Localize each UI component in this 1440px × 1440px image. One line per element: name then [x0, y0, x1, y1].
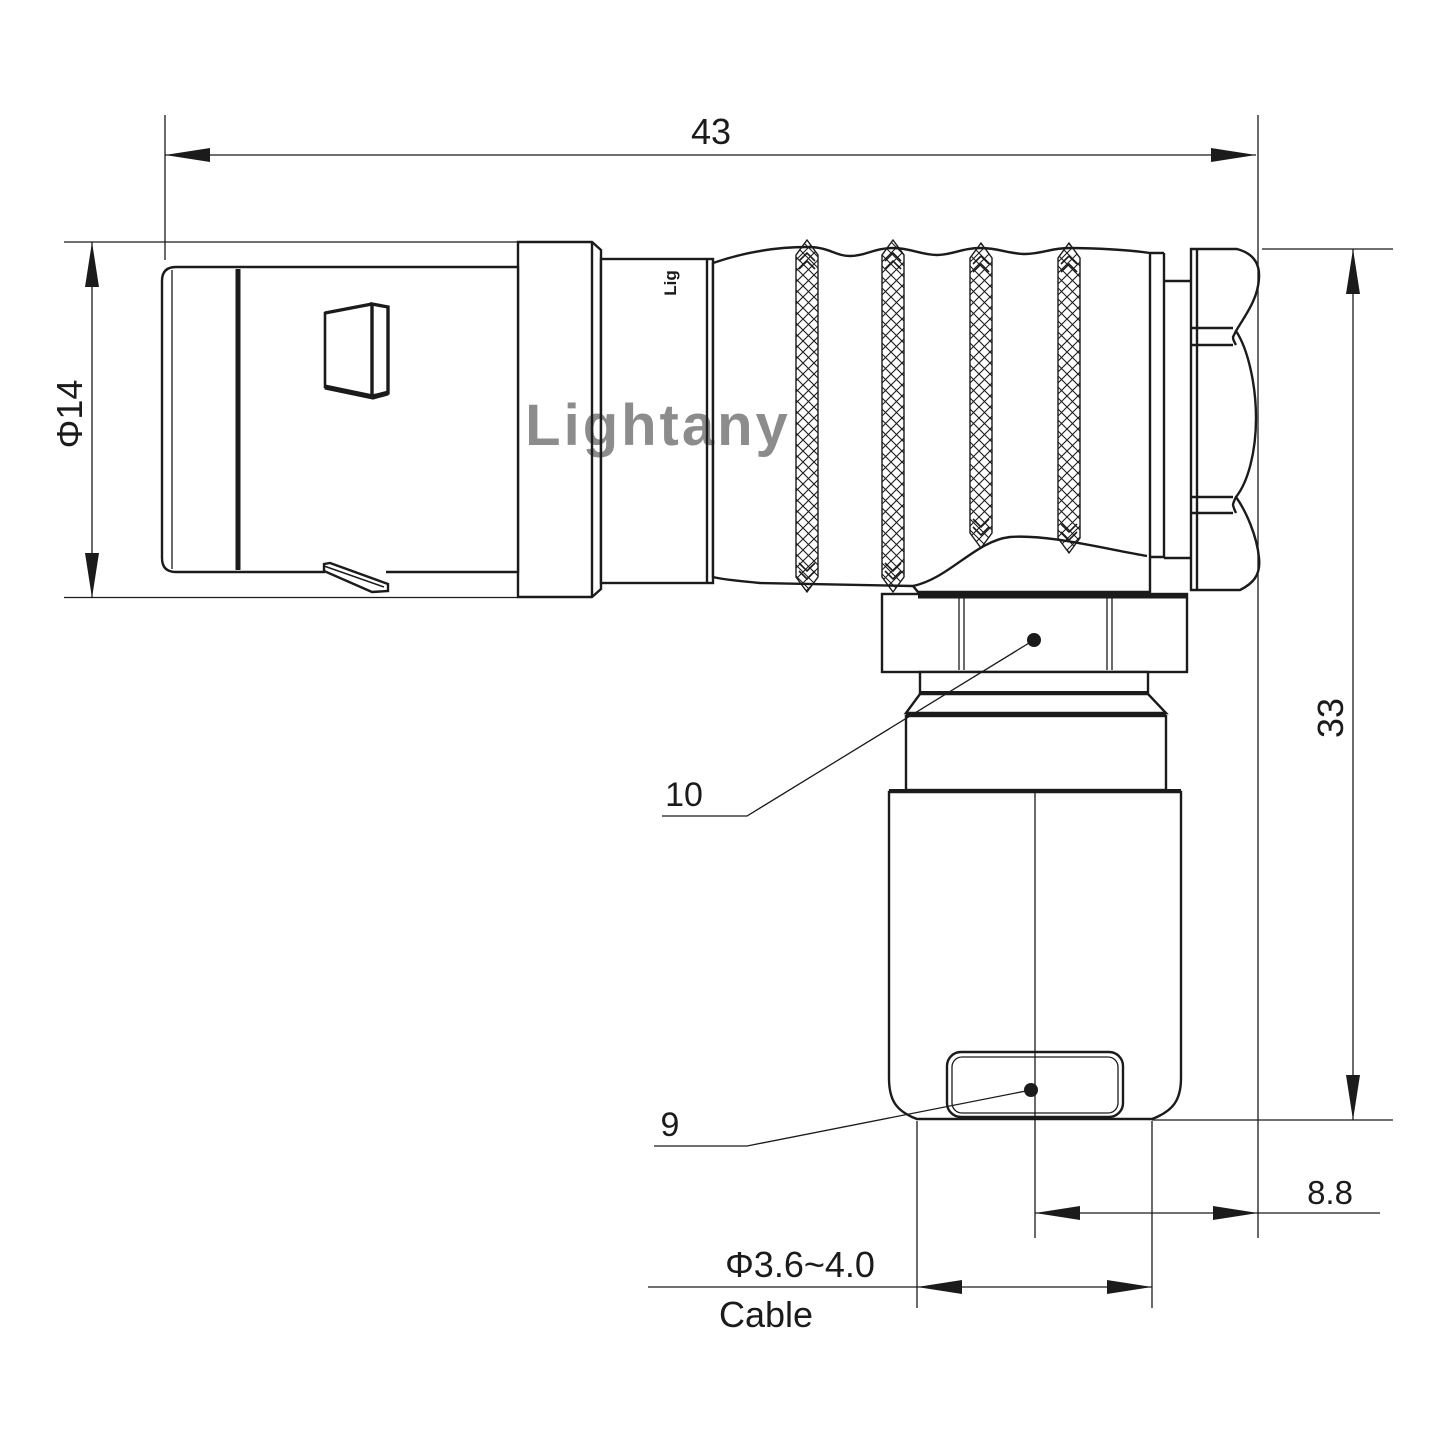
knurl-band-2: [882, 240, 904, 592]
arrow-up-icon: [1346, 249, 1360, 294]
callout-crimp-text: 9: [661, 1106, 680, 1144]
callout-nut-text: 10: [665, 776, 703, 814]
dim-front-diameter-text: Φ14: [49, 380, 90, 449]
dimension-rear-offset: 8.8: [1035, 1174, 1380, 1220]
arrow-right-icon: [1107, 1280, 1152, 1294]
dim-overall-length-text: 43: [691, 111, 731, 152]
dim-rear-offset-text: 8.8: [1307, 1174, 1353, 1211]
neck-lines: [1164, 281, 1191, 558]
arrow-left-icon: [165, 148, 210, 162]
leader-dot-icon: [1027, 633, 1041, 647]
boot-flange: [906, 694, 1166, 713]
dim-height-text: 33: [1310, 698, 1351, 738]
arrow-right-icon: [1213, 1206, 1258, 1220]
dimension-height: 33: [1152, 249, 1393, 1120]
leader-dot-icon: [1024, 1083, 1038, 1097]
knurl-band-1: [796, 240, 818, 592]
arrow-down-icon: [85, 553, 99, 598]
grip-end-edges: [1150, 253, 1164, 557]
retention-tab: [324, 563, 388, 592]
latch-window: [325, 304, 388, 397]
dimension-cable: Φ3.6~4.0 Cable: [648, 1121, 1152, 1335]
technical-drawing-page: Lightany Lig 43 Φ14: [0, 0, 1440, 1440]
brand-stamp: Lig: [661, 270, 680, 296]
knurl-band-4: [1058, 243, 1080, 553]
nut-collar: [920, 672, 1148, 694]
arrow-down-icon: [1346, 1075, 1360, 1120]
dim-cable-diameter-text: Φ3.6~4.0: [725, 1244, 875, 1285]
knurl-band-3: [970, 243, 992, 548]
arrow-left-icon: [917, 1280, 962, 1294]
watermark: Lightany: [525, 393, 791, 458]
connector-technical-drawing: Lightany Lig 43 Φ14: [0, 0, 1440, 1440]
arrow-left-icon: [1035, 1206, 1080, 1220]
arrow-up-icon: [85, 242, 99, 287]
connector-body: [162, 242, 1259, 1238]
coupling-nut: [882, 594, 1187, 672]
backnut-cap: [1191, 249, 1259, 590]
cable-boot-upper: [906, 716, 1166, 790]
arrow-right-icon: [1211, 148, 1256, 162]
dim-cable-label-text: Cable: [719, 1294, 813, 1335]
